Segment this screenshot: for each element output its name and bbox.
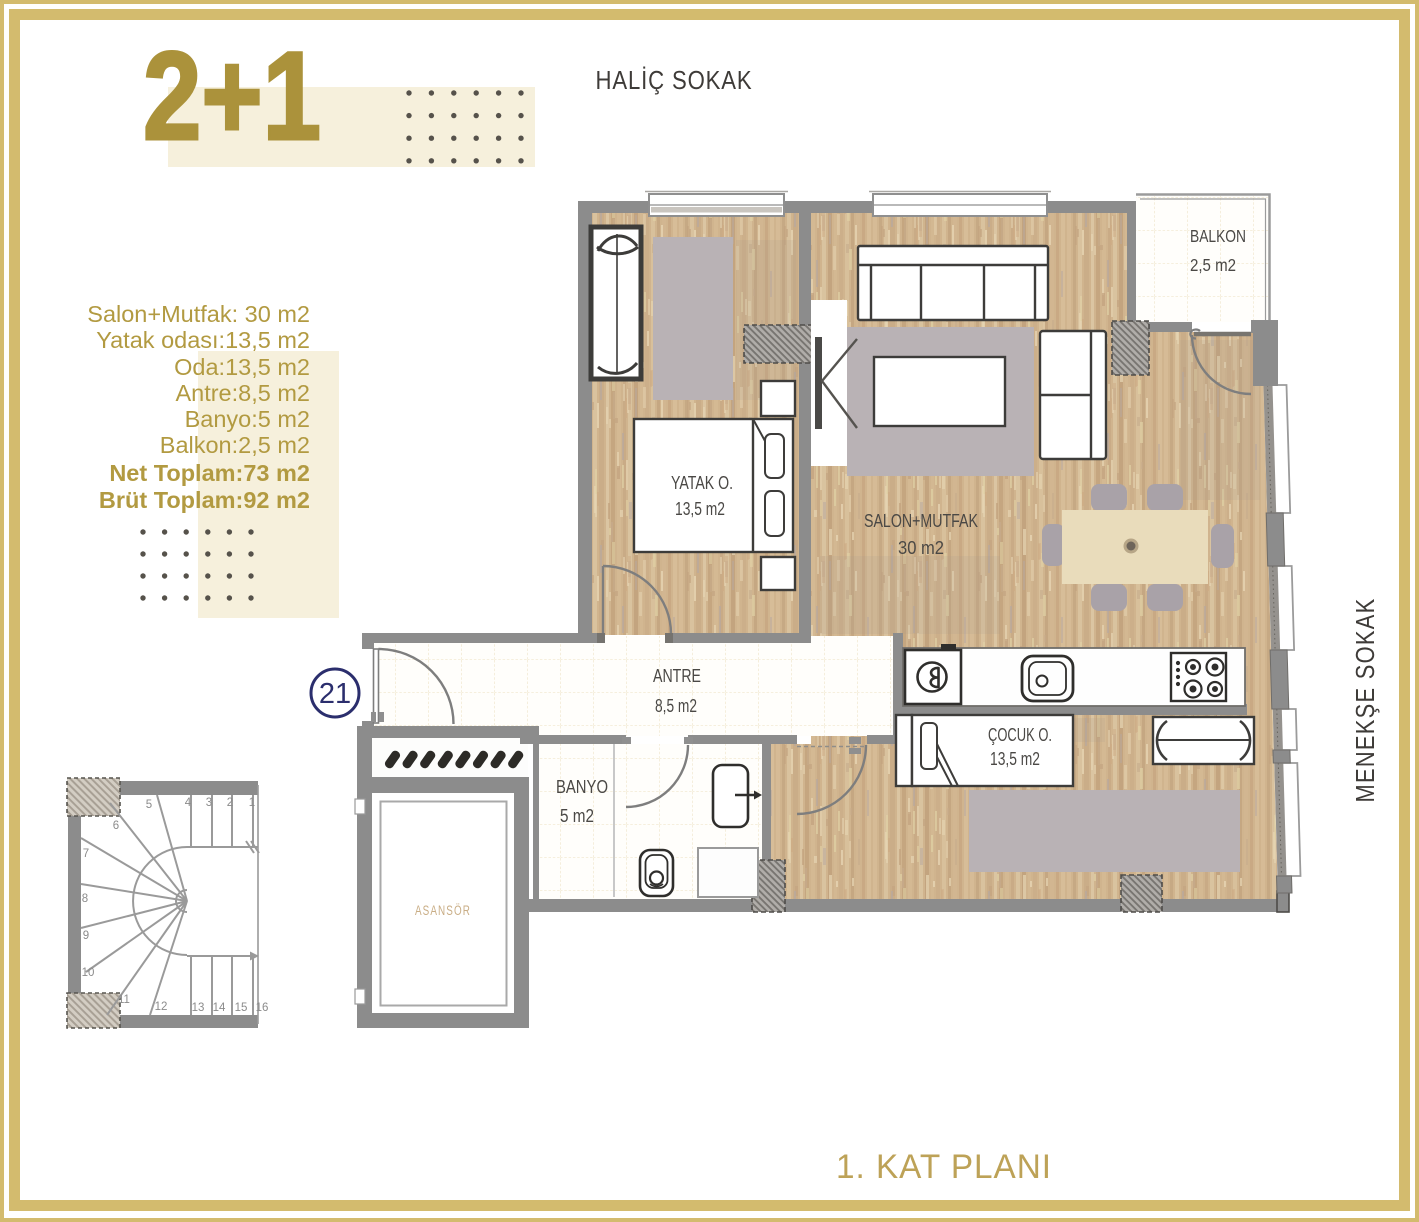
svg-text:Brüt Toplam:92 m2: Brüt Toplam:92 m2 (99, 487, 310, 513)
svg-text:8: 8 (82, 893, 88, 905)
svg-text:2+1: 2+1 (143, 27, 321, 166)
svg-text:7: 7 (83, 848, 89, 860)
svg-text:BALKON: BALKON (1190, 226, 1246, 246)
svg-text:HALİÇ SOKAK: HALİÇ SOKAK (596, 65, 753, 95)
svg-text:8,5 m2: 8,5 m2 (655, 696, 697, 716)
svg-text:Net Toplam:73 m2: Net Toplam:73 m2 (109, 460, 310, 486)
svg-text:MENEKŞE SOKAK: MENEKŞE SOKAK (1352, 598, 1380, 803)
svg-text:SALON+MUTFAK: SALON+MUTFAK (864, 511, 978, 531)
svg-text:21: 21 (319, 678, 351, 710)
svg-text:ANTRE: ANTRE (653, 666, 701, 686)
svg-text:13,5 m2: 13,5 m2 (675, 499, 725, 519)
svg-text:10: 10 (82, 967, 95, 979)
svg-text:YATAK O.: YATAK O. (671, 473, 733, 493)
svg-text:30 m2: 30 m2 (898, 538, 944, 558)
svg-text:3: 3 (206, 797, 212, 809)
svg-text:Antre:8,5 m2: Antre:8,5 m2 (175, 380, 310, 406)
svg-text:2,5 m2: 2,5 m2 (1190, 255, 1236, 275)
svg-text:Oda:13,5 m2: Oda:13,5 m2 (174, 354, 310, 380)
svg-text:Balkon:2,5 m2: Balkon:2,5 m2 (160, 432, 310, 458)
svg-text:6: 6 (113, 820, 119, 832)
svg-text:1: 1 (249, 797, 255, 809)
svg-text:5 m2: 5 m2 (560, 806, 594, 826)
svg-text:13,5 m2: 13,5 m2 (990, 749, 1040, 769)
svg-text:15: 15 (235, 1002, 248, 1014)
svg-text:Salon+Mutfak: 30 m2: Salon+Mutfak: 30 m2 (87, 301, 310, 327)
svg-text:Banyo:5 m2: Banyo:5 m2 (185, 406, 310, 432)
svg-text:Yatak odası:13,5 m2: Yatak odası:13,5 m2 (96, 327, 310, 353)
svg-text:13: 13 (192, 1002, 205, 1014)
svg-text:5: 5 (146, 799, 152, 811)
svg-text:11: 11 (118, 994, 130, 1006)
svg-text:ASANSÖR: ASANSÖR (415, 903, 471, 918)
svg-text:ÇOCUK O.: ÇOCUK O. (988, 725, 1052, 745)
svg-text:16: 16 (256, 1002, 269, 1014)
svg-text:4: 4 (185, 797, 192, 809)
svg-text:14: 14 (213, 1002, 226, 1014)
svg-text:12: 12 (155, 1001, 168, 1013)
svg-text:1. KAT PLANI: 1. KAT PLANI (836, 1148, 1052, 1186)
svg-text:2: 2 (227, 797, 233, 809)
svg-text:BANYO: BANYO (556, 777, 608, 797)
svg-text:9: 9 (83, 930, 89, 942)
